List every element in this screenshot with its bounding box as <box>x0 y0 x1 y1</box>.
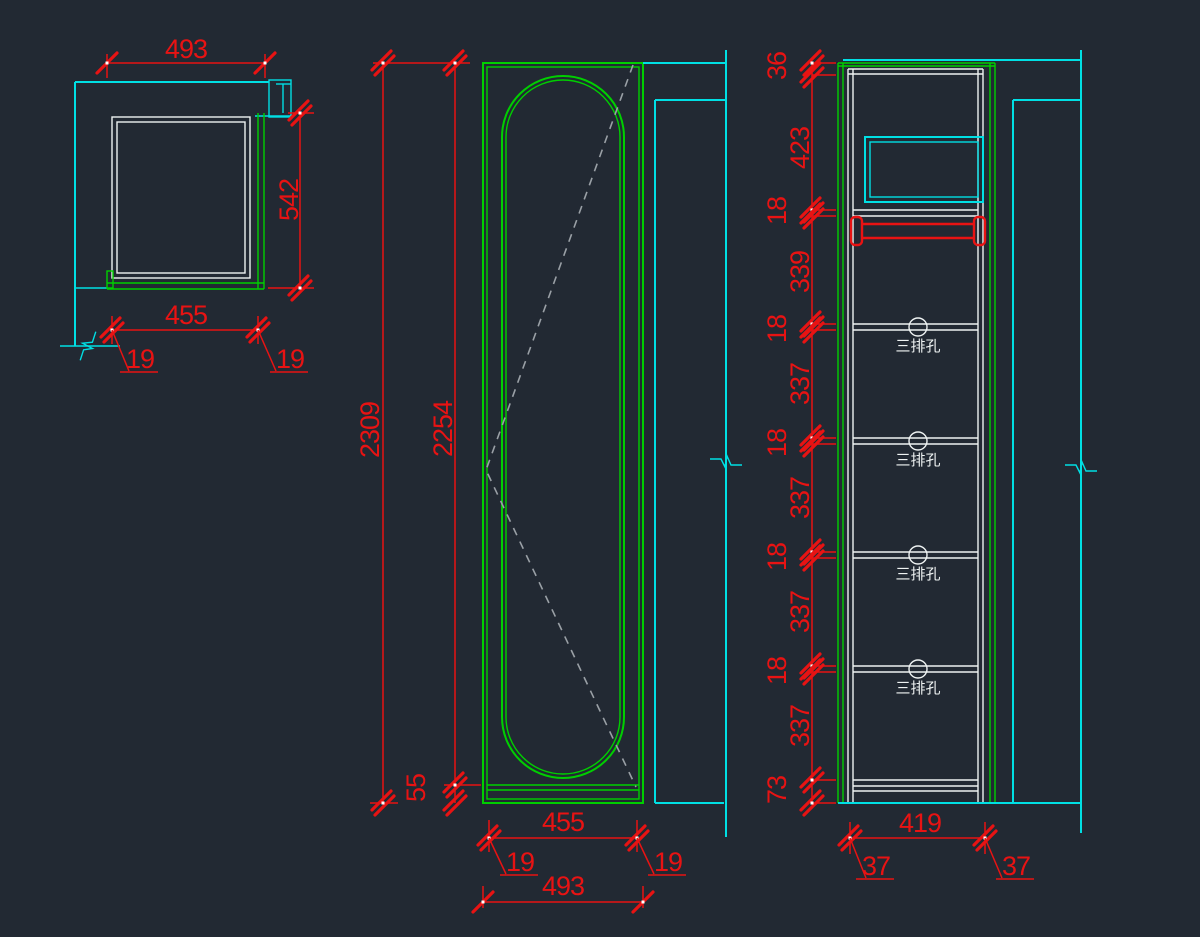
section-wall <box>838 50 1097 833</box>
section-dim-widths: 419 37 37 <box>839 808 1034 881</box>
dim-label: 455 <box>165 300 207 330</box>
shelf-3: 三排孔 <box>853 546 978 583</box>
section-view: 三排孔 三排孔 三排孔 三排孔 <box>762 50 1097 881</box>
hole-row-marker <box>909 318 927 336</box>
hole-row-label: 三排孔 <box>895 680 940 697</box>
dim-label: 18 <box>762 429 792 457</box>
shelf-1: 三排孔 <box>853 318 978 355</box>
front-dim-widths: 455 19 19 493 <box>473 807 686 912</box>
dim-label: 37 <box>862 851 890 881</box>
plan-dim-width-bottom: 455 19 19 <box>101 300 308 374</box>
dim-label: 19 <box>126 344 154 374</box>
cad-canvas[interactable]: 493 542 455 19 19 <box>0 0 1200 937</box>
plan-dim-depth: 542 <box>268 101 314 300</box>
hole-row-label: 三排孔 <box>895 566 940 583</box>
dim-label: 423 <box>785 127 815 169</box>
shelf-2: 三排孔 <box>853 432 978 469</box>
plan-view: 493 542 455 19 19 <box>60 34 314 374</box>
front-dim-heights: 2309 2254 55 <box>355 51 481 815</box>
dim-label: 18 <box>762 197 792 225</box>
dim-label: 337 <box>785 363 815 405</box>
front-frame <box>483 63 643 803</box>
dim-label: 2309 <box>355 402 385 458</box>
wall-break-mark <box>710 456 742 467</box>
hanging-rod <box>851 217 985 245</box>
dim-label: 2254 <box>428 400 458 457</box>
dim-label: 19 <box>276 344 304 374</box>
dim-label: 419 <box>899 808 941 838</box>
shelf-top <box>853 210 978 216</box>
dim-label: 493 <box>165 34 207 64</box>
dim-label: 73 <box>762 776 792 804</box>
hole-row-label: 三排孔 <box>895 452 940 469</box>
front-door <box>486 65 636 787</box>
plan-cabinet <box>107 113 264 289</box>
hole-row-marker <box>909 432 927 450</box>
front-wall <box>643 50 742 837</box>
dim-label: 337 <box>785 705 815 747</box>
plan-dim-width-top: 493 <box>97 34 275 78</box>
dim-label: 455 <box>542 807 584 837</box>
dim-label: 18 <box>762 657 792 685</box>
mirror-panel <box>865 137 983 202</box>
hole-row-label: 三排孔 <box>895 338 940 355</box>
section-dim-chain: 36 423 18 339 18 337 18 337 18 337 18 33… <box>762 51 836 815</box>
dim-label: 55 <box>401 774 431 802</box>
dim-label: 18 <box>762 543 792 571</box>
shelf-4: 三排孔 <box>853 660 978 697</box>
shelf-bottom <box>853 780 978 791</box>
dim-label: 19 <box>506 847 534 877</box>
dim-label: 18 <box>762 315 792 343</box>
plan-jamb-bracket <box>255 80 293 117</box>
dim-label: 36 <box>762 52 792 80</box>
dim-label: 339 <box>785 251 815 293</box>
dim-label: 19 <box>654 847 682 877</box>
cad-drawing: 493 542 455 19 19 <box>0 0 1200 937</box>
dim-label: 542 <box>274 179 304 221</box>
dim-label: 337 <box>785 591 815 633</box>
hole-row-marker <box>909 660 927 678</box>
dim-label: 493 <box>542 871 584 901</box>
dim-label: 337 <box>785 477 815 519</box>
hole-row-marker <box>909 546 927 564</box>
door-swing-dash <box>486 65 636 787</box>
dim-label: 37 <box>1002 851 1030 881</box>
wall-break-mark <box>1065 462 1097 473</box>
front-view: 2309 2254 55 455 19 19 493 <box>355 50 742 912</box>
